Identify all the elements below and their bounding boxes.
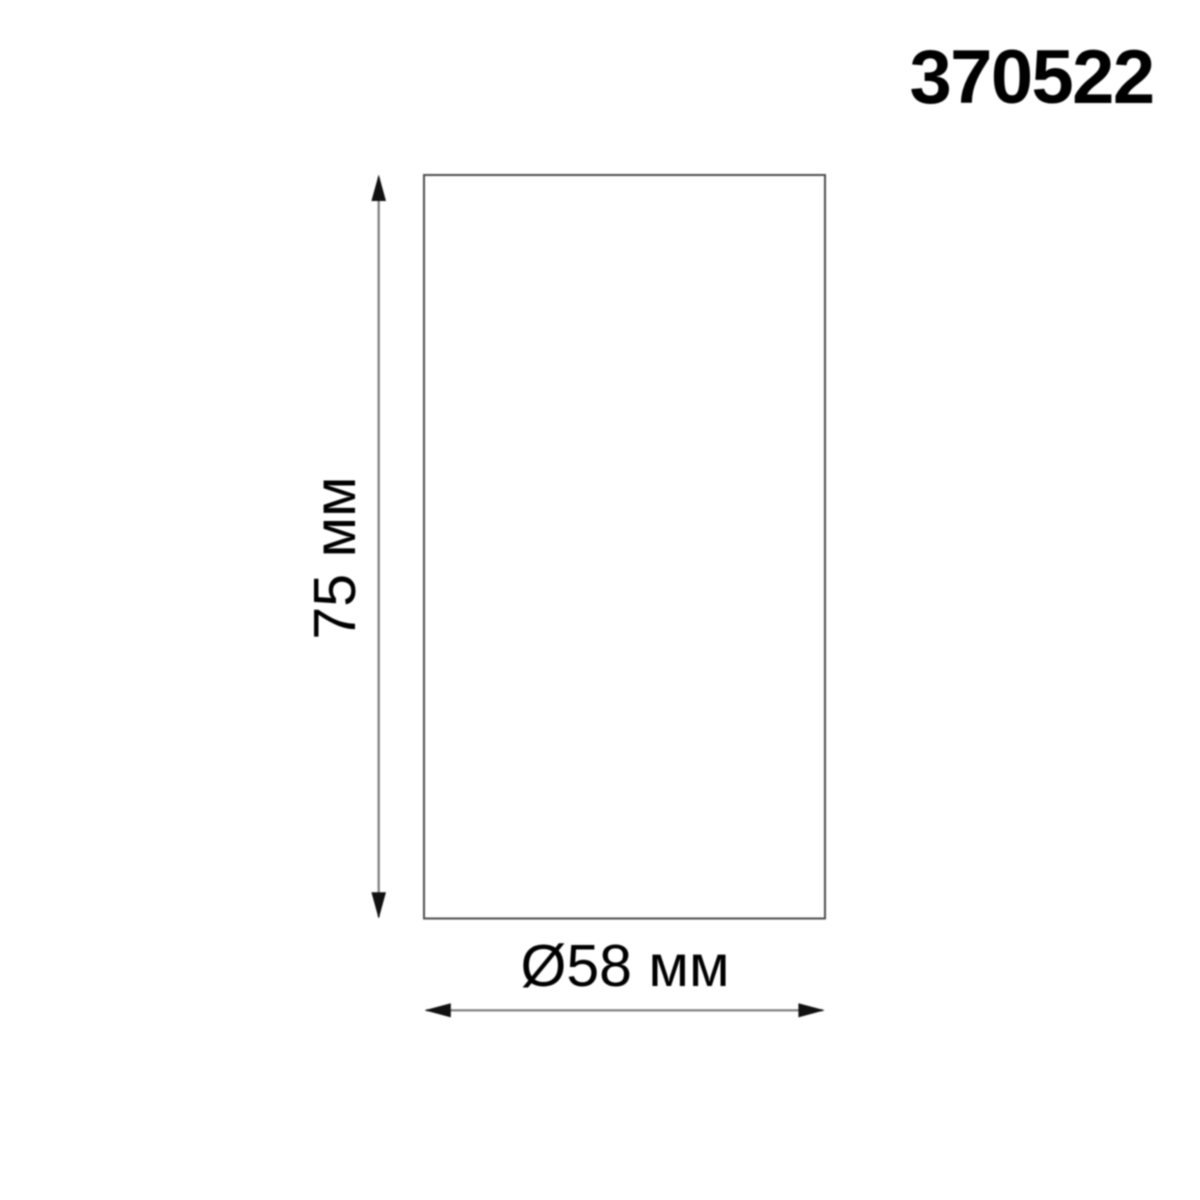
svg-text:Ø58 мм: Ø58 мм	[520, 933, 729, 999]
svg-text:370522: 370522	[909, 35, 1153, 120]
svg-text:75 мм: 75 мм	[302, 476, 368, 639]
